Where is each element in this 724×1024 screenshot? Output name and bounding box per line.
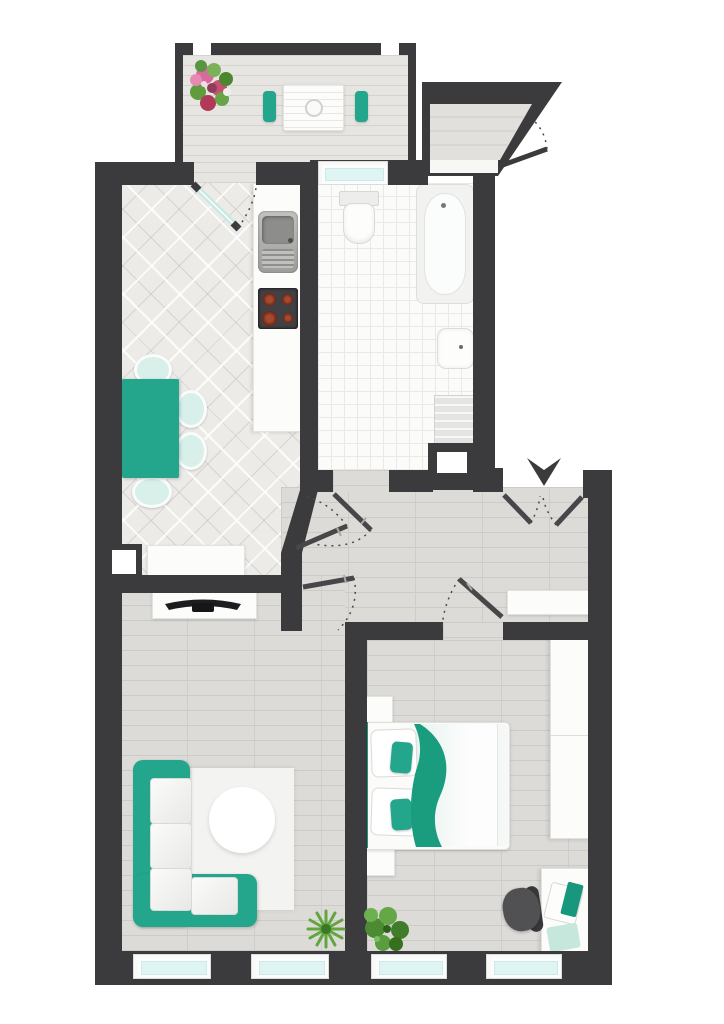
balcony-flower-pot	[190, 60, 233, 111]
bed-blanket	[411, 724, 446, 847]
overlay-graphics	[0, 0, 724, 1024]
floor-plan	[0, 0, 724, 1024]
living-door-arc	[338, 578, 355, 630]
living-room-plant-center	[321, 924, 331, 934]
entrance-door-left-leaf	[504, 495, 531, 523]
bathroom-door-leaf	[334, 494, 371, 530]
balcony-door-tip	[233, 223, 239, 229]
entrance-arrow	[527, 458, 561, 486]
entrance-door-left-arc	[531, 496, 540, 523]
bedroom-door-arc	[442, 579, 459, 630]
bedroom-door-leaf	[459, 579, 502, 617]
tv-stand	[192, 603, 214, 612]
balcony-door-arc	[238, 188, 256, 228]
balcony-door-leaf-line	[195, 186, 238, 228]
balcony-door-hinge	[193, 184, 199, 190]
stairwell-door-arc	[532, 119, 547, 149]
entrance-door-right-arc	[543, 497, 556, 525]
bedroom-plant	[364, 907, 409, 951]
entrance-door-right-leaf	[556, 497, 582, 525]
stairwell-threshold	[430, 160, 498, 173]
